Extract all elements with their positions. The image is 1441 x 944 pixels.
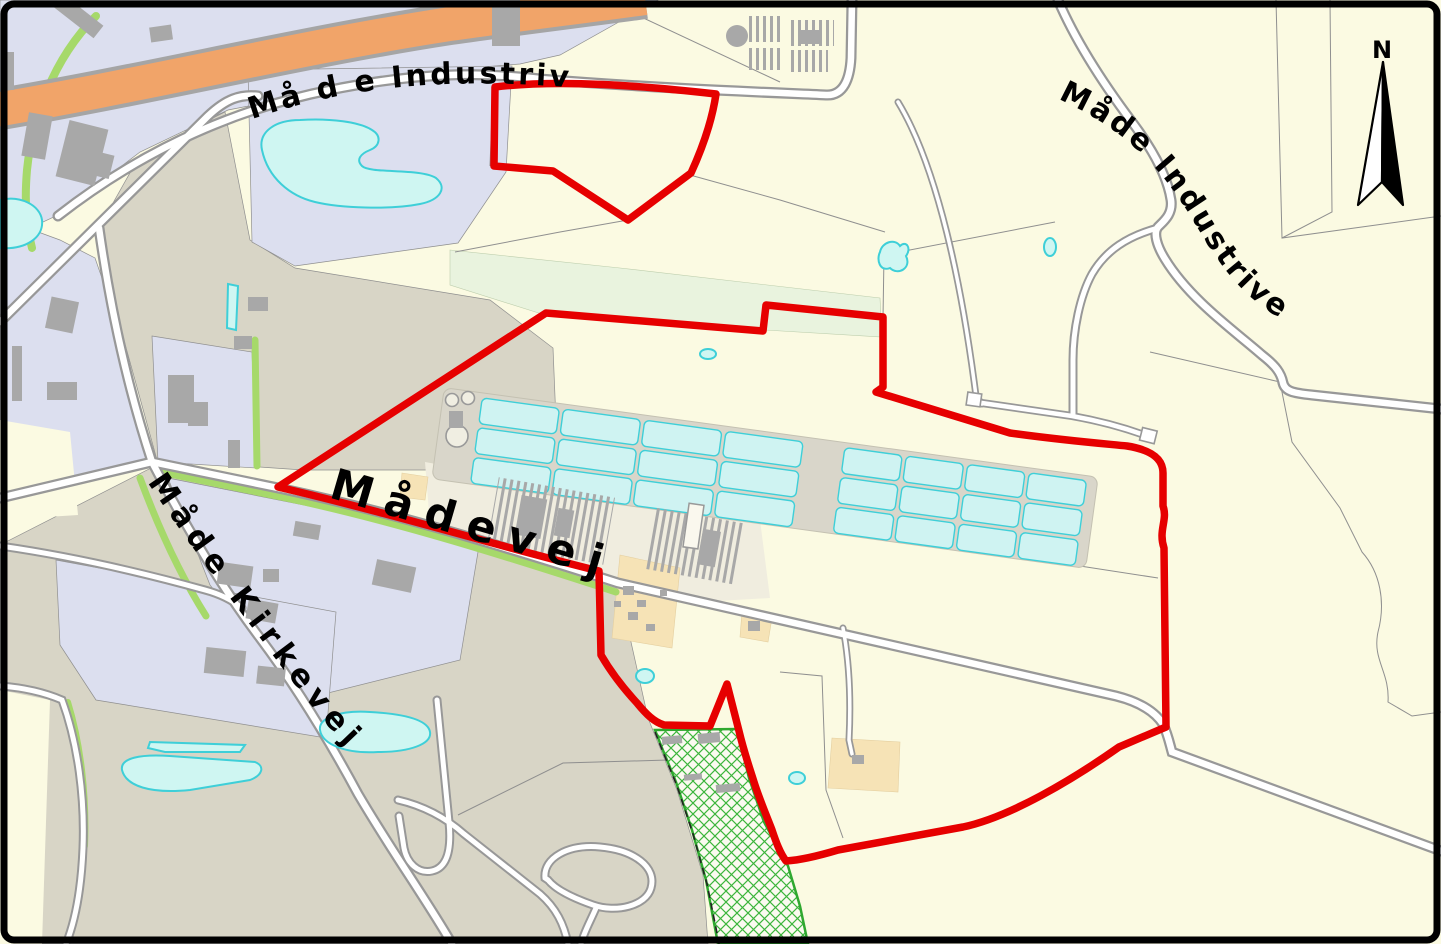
tank-icon (726, 25, 748, 47)
tank-icon (446, 394, 459, 407)
road-end-box (1140, 427, 1158, 443)
tank-icon (462, 392, 475, 405)
road-end-box (966, 392, 982, 407)
tank-icon (446, 425, 468, 447)
north-label: N (1372, 36, 1392, 64)
map-screenshot: Må d e Industrivej Måde Industrivej Måde… (0, 0, 1441, 944)
map-canvas: Må d e Industrivej Måde Industrivej Måde… (0, 0, 1441, 944)
